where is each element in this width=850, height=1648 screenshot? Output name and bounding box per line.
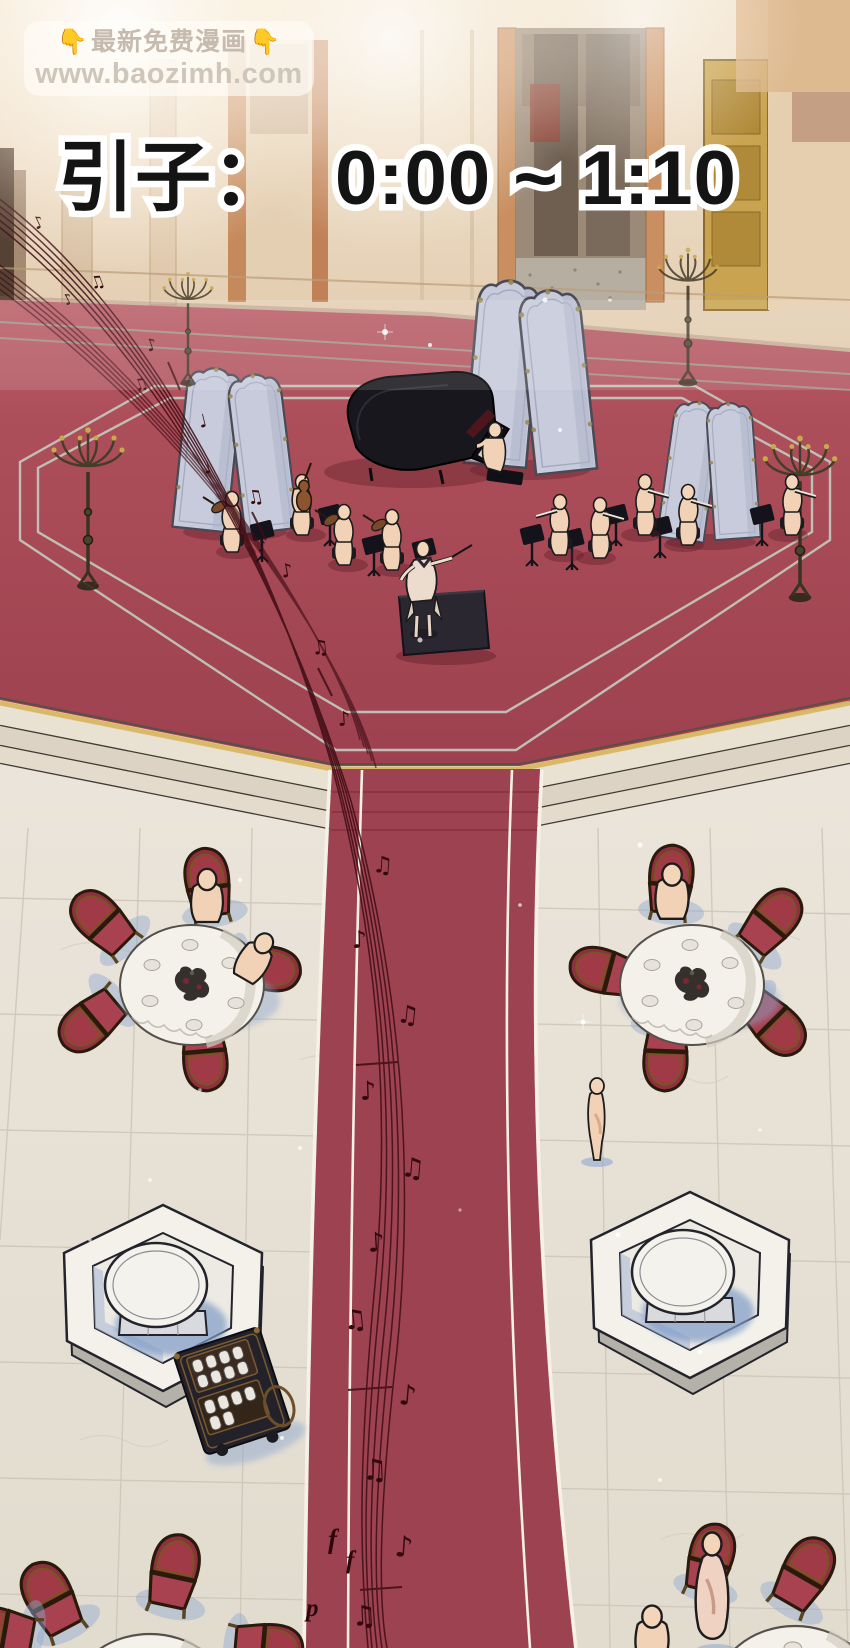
sheet-music-note: ♪: [394, 1529, 415, 1564]
badge-label: 最新免费漫画: [91, 28, 247, 56]
dynamics-mark: p: [304, 1595, 319, 1622]
page-title: 引子：0:00 ~ 1:10 引子：0:00 ~ 1:10: [58, 116, 737, 226]
badge-url: www.baozimh.com: [24, 58, 314, 91]
red-carpet-runner: [304, 769, 576, 1648]
hand-down-icon: 👇: [55, 28, 91, 56]
page-title-text: 引子：0:00 ~ 1:10: [58, 136, 737, 221]
sheet-music-note: ♪: [351, 925, 367, 954]
sheet-music-note: ♫: [395, 999, 420, 1030]
hand-down-icon: 👇: [247, 28, 283, 56]
badge-label-row: 👇最新免费漫画👇: [24, 27, 314, 58]
sheet-music-note: ♪: [397, 1378, 418, 1412]
sheet-music-note: ♪: [337, 706, 351, 731]
watermark-badge[interactable]: 👇最新免费漫画👇 www.baozimh.com: [24, 21, 314, 96]
sheet-music-note: ♪: [359, 1076, 377, 1107]
sheet-music-note: ♫: [399, 1152, 426, 1185]
sheet-music-note: ♪: [367, 1227, 386, 1259]
sheet-music-note: ♫: [310, 634, 330, 660]
ballroom-illustration: ♪♫♪♩♫♪♫♪♪♫♩♪♫♪♫♪♫♪♫♪♫♪♫ffp: [0, 0, 850, 1648]
sheet-music-note: ♫: [361, 1452, 388, 1487]
sheet-music-note: ♫: [341, 1304, 368, 1337]
sheet-music-note: ♫: [351, 1599, 378, 1633]
comic-page: ♪♫♪♩♫♪♫♪♪♫♩♪♫♪♫♪♫♪♫♪♫♪♫ffp 👇最新免费漫画👇 www.…: [0, 0, 850, 1648]
sheet-music-note: ♫: [372, 852, 394, 879]
